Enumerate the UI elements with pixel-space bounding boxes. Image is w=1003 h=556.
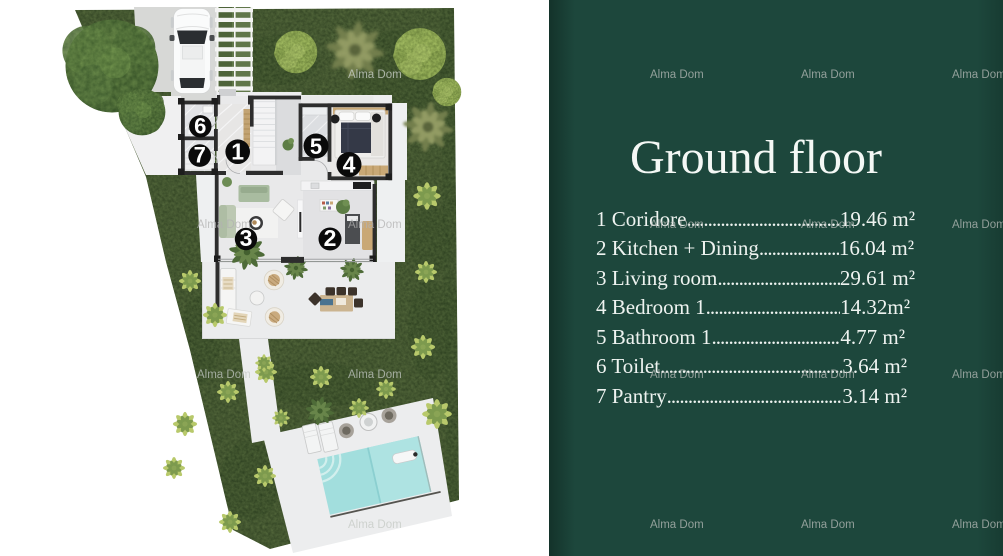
svg-text:7: 7 — [194, 143, 206, 168]
svg-text:4: 4 — [343, 151, 356, 177]
svg-text:2: 2 — [324, 225, 337, 251]
svg-text:5: 5 — [310, 134, 322, 159]
svg-text:6: 6 — [194, 113, 206, 138]
svg-text:1: 1 — [231, 138, 244, 164]
